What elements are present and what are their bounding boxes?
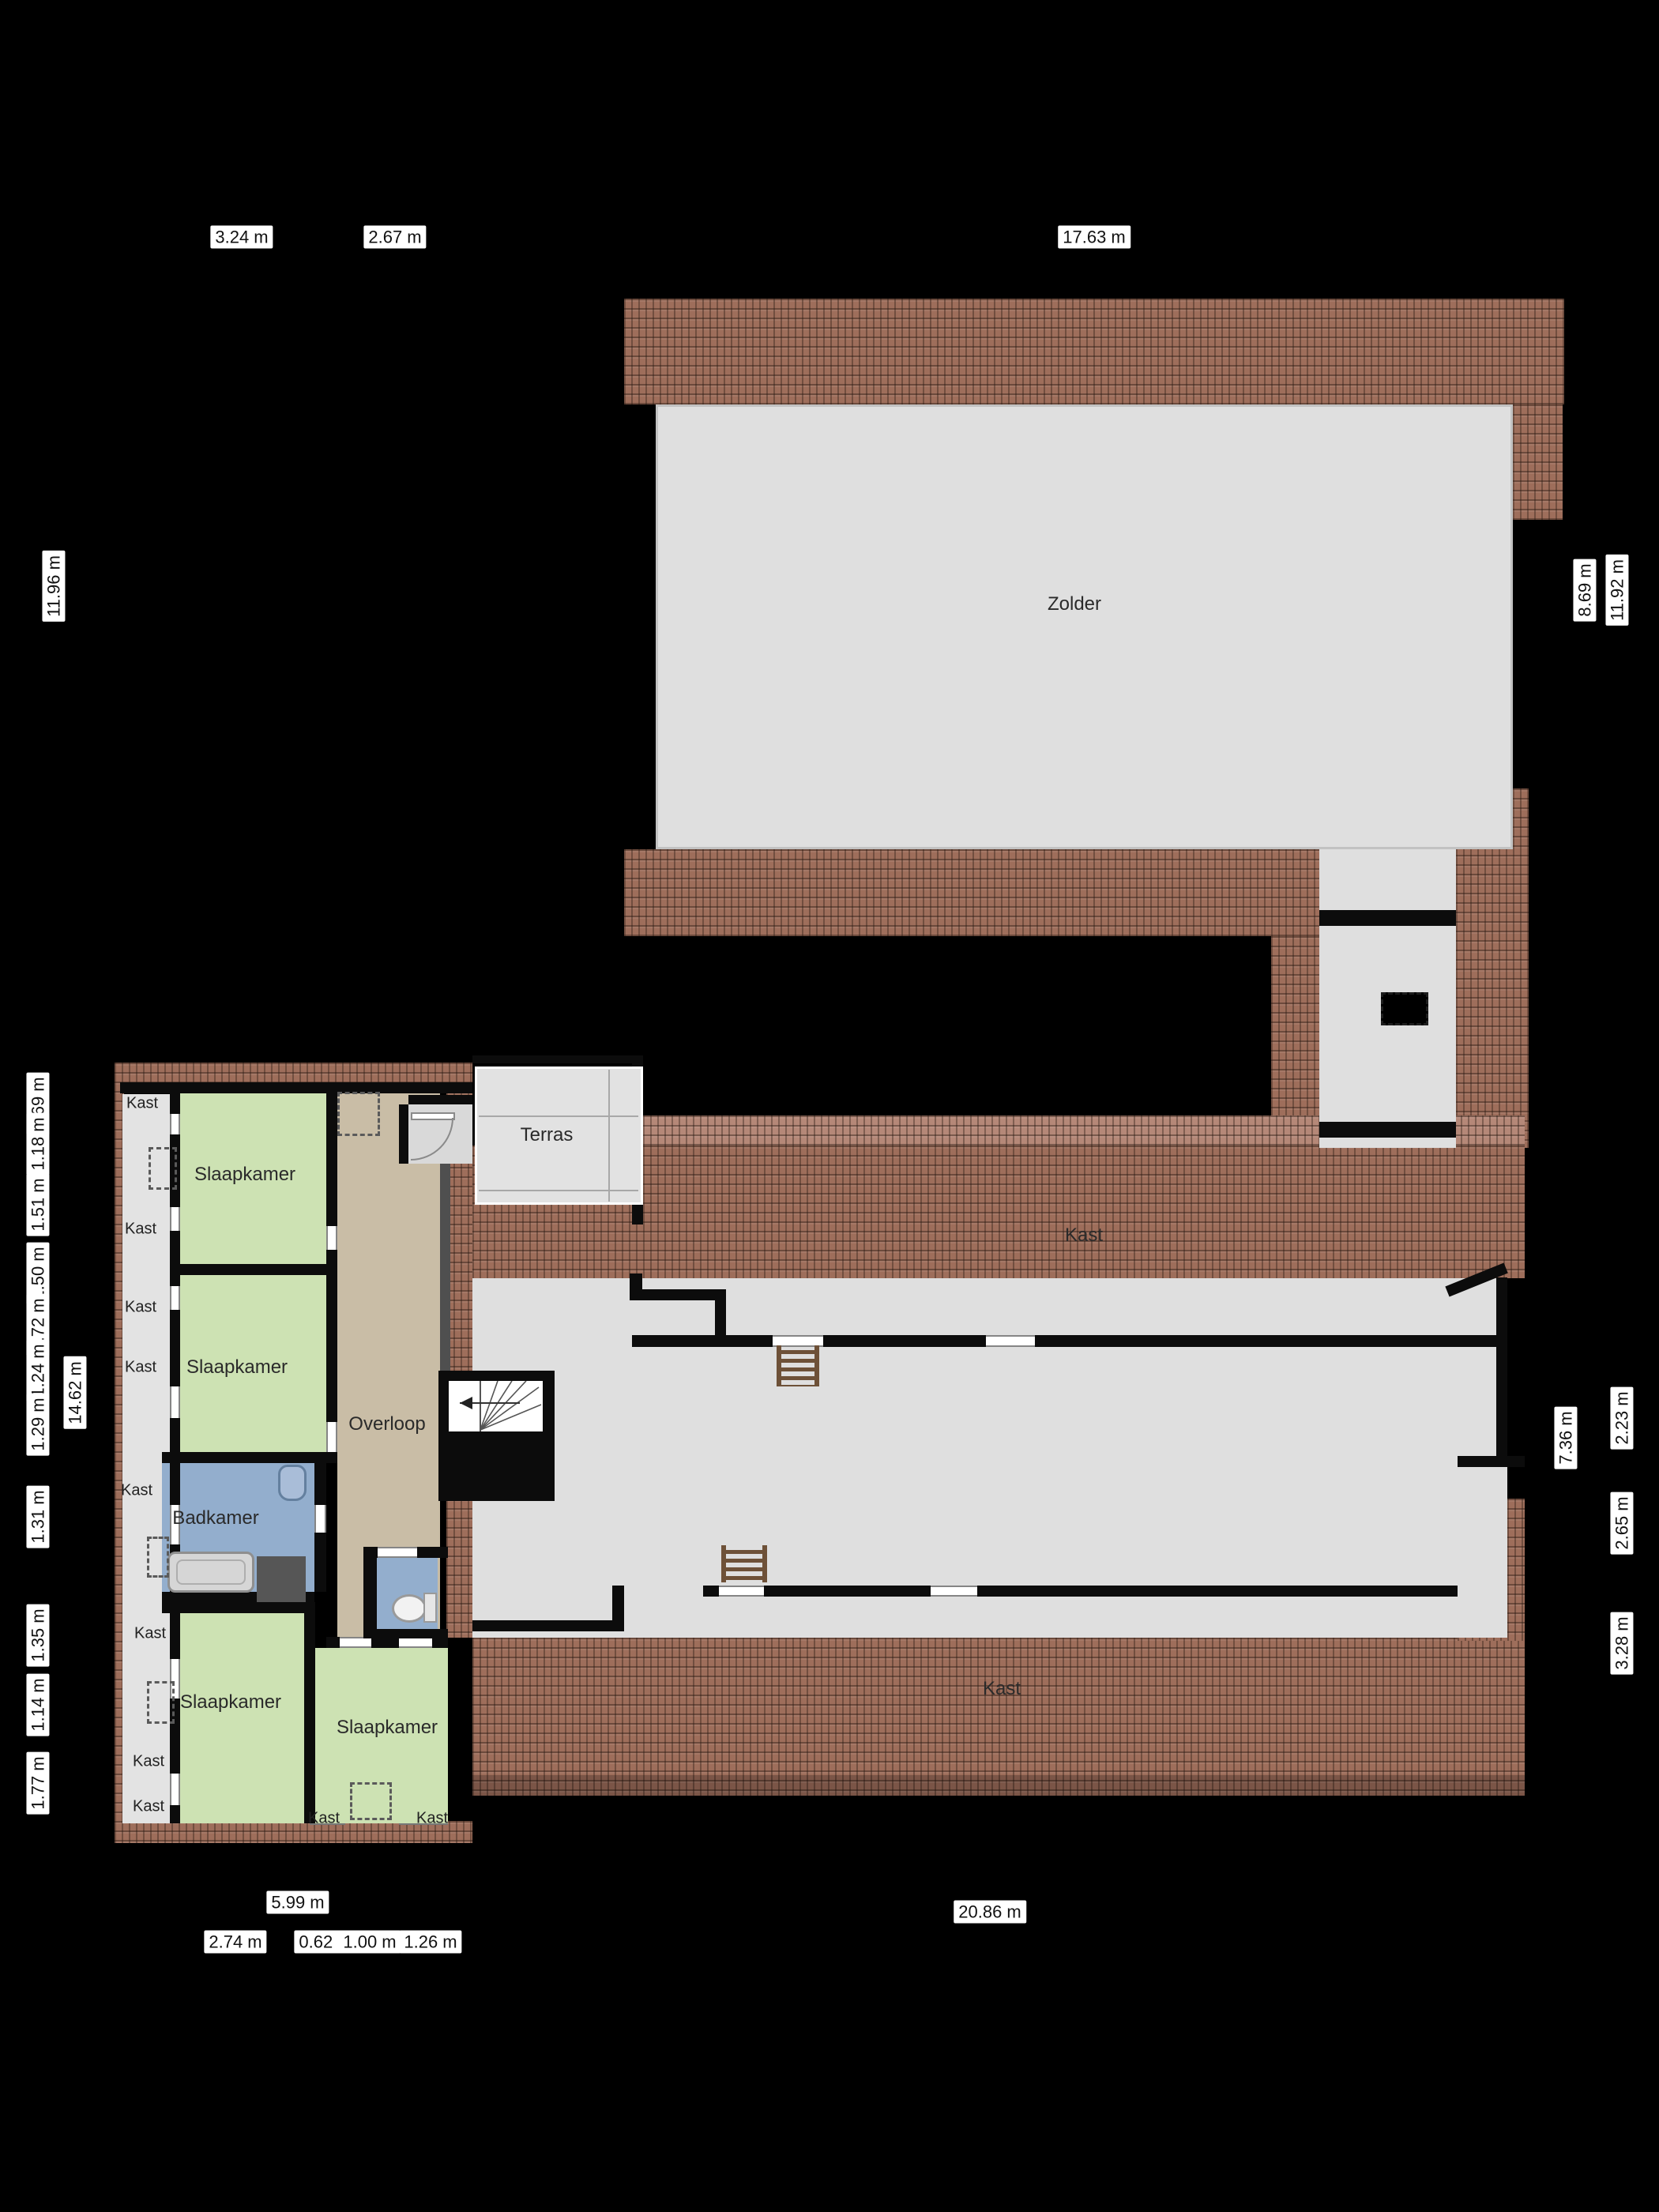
room-label-overloop: Overloop: [348, 1413, 425, 1435]
room-label-badkamer: Badkamer: [172, 1507, 258, 1529]
room-slaapkamer-3: [175, 1613, 304, 1823]
dim-label: 1.77 m: [26, 1751, 49, 1814]
sink-icon: [278, 1465, 307, 1501]
channel-wall-upper: [1319, 910, 1456, 926]
dim-label: 20.86 m: [954, 1900, 1026, 1923]
closet-door: [170, 1207, 180, 1231]
dim-label: 1.35 m: [26, 1604, 49, 1666]
closet-door: [170, 1114, 180, 1134]
attic-main-floor: [472, 1278, 1507, 1638]
window: [931, 1586, 977, 1597]
room-label-kast: Kast: [416, 1810, 448, 1828]
channel-wall-lower: [1319, 1122, 1456, 1138]
attic-wall-step-h: [630, 1289, 724, 1300]
dim-label: 1.29 m: [26, 1393, 49, 1455]
skylight-dashed: [337, 1092, 380, 1136]
toilet-icon: [392, 1594, 427, 1623]
window: [719, 1586, 764, 1597]
stairs-icon: [449, 1381, 543, 1431]
wall-vestibule-west: [399, 1104, 408, 1164]
room-zolder: [656, 404, 1513, 849]
loft-ladder-icon: [777, 1345, 819, 1386]
closet-door: [170, 1386, 180, 1418]
dim-label: 1.51 m: [26, 1173, 49, 1236]
closet-door: [170, 1774, 180, 1805]
wall-wc-south: [363, 1629, 448, 1638]
wing-top-wall: [120, 1082, 472, 1093]
roof-eave-shadow: [472, 1775, 1525, 1796]
dim-label: 11.92 m: [1605, 555, 1628, 626]
room-label-slaapkamer-4: Slaapkamer: [337, 1717, 438, 1739]
terras-rail-line: [479, 1115, 638, 1117]
dim-label: 1.31 m: [26, 1485, 49, 1548]
dim-label: 1.26 m: [399, 1930, 461, 1953]
attic-wall-right-bottom: [1458, 1456, 1525, 1467]
roof-band-top: [624, 299, 1564, 404]
dim-label: 2.65 m: [1610, 1492, 1633, 1554]
roof-band-kast-lower: [472, 1638, 1525, 1796]
window: [986, 1335, 1035, 1347]
dim-label: 2.23 m: [1610, 1386, 1633, 1449]
attic-wall-lower-west: [472, 1620, 624, 1631]
door-opening: [399, 1637, 432, 1648]
attic-wall-lower: [703, 1586, 1458, 1597]
room-label-kast-roof-upper: Kast: [1065, 1224, 1103, 1247]
attic-wall-step-up: [630, 1273, 642, 1300]
door-opening: [314, 1505, 326, 1533]
room-label-terras: Terras: [521, 1124, 574, 1146]
door-opening: [340, 1637, 371, 1648]
attic-wall-upper: [632, 1335, 1507, 1347]
wall-stairwell-gray: [440, 1164, 450, 1371]
room-label-slaapkamer-1: Slaapkamer: [194, 1164, 295, 1186]
dim-label: 11.96 m: [42, 551, 65, 622]
room-label-kast: Kast: [125, 1359, 156, 1377]
loft-ladder-icon: [721, 1545, 767, 1582]
terras-rail-line: [608, 1070, 610, 1202]
skylight-dashed: [147, 1681, 175, 1724]
skylight-dashed: [149, 1147, 177, 1190]
wall-wc-west: [363, 1558, 377, 1633]
dim-label: 7.36 m: [1554, 1406, 1577, 1469]
room-label-kast: Kast: [308, 1810, 340, 1828]
duct-shaft: [257, 1556, 306, 1602]
dim-label: 8.69 m: [1573, 559, 1596, 621]
attic-wall-right: [1496, 1277, 1507, 1467]
room-label-kast: Kast: [133, 1798, 164, 1816]
dim-label: 3.28 m: [1610, 1612, 1633, 1674]
wall-bed1-bed2: [175, 1264, 337, 1275]
room-label-kast: Kast: [125, 1299, 156, 1317]
dim-label: 17.63 m: [1058, 225, 1130, 248]
wc-door: [378, 1547, 417, 1558]
roof-band-mid: [624, 849, 1319, 936]
window: [326, 1226, 337, 1250]
skylight-dashed: [350, 1782, 392, 1820]
room-label-slaapkamer-3: Slaapkamer: [180, 1691, 281, 1714]
dim-label: 2.74 m: [204, 1930, 266, 1953]
room-label-kast: Kast: [125, 1221, 156, 1239]
room-label-zolder: Zolder: [1048, 593, 1101, 615]
wall-corridor-west: [326, 1093, 337, 1458]
dim-label: 2.67 m: [363, 225, 426, 248]
room-label-kast: Kast: [126, 1095, 158, 1113]
dim-label: 1.14 m: [26, 1673, 49, 1736]
wall-bed3-bed4: [304, 1608, 315, 1823]
toilet-tank-icon: [423, 1593, 437, 1623]
room-label-kast: Kast: [133, 1753, 164, 1771]
wall-bed2-bath: [162, 1452, 337, 1463]
bathtub-icon: [167, 1552, 254, 1593]
dim-label: 14.62 m: [63, 1356, 86, 1429]
terras-top-wall: [472, 1055, 643, 1063]
roof-corner-top-right: [1513, 404, 1563, 520]
dim-label: 1.18 m: [26, 1112, 49, 1175]
room-label-kast-roof-lower: Kast: [983, 1678, 1021, 1700]
dim-label: 5.99 m: [266, 1890, 329, 1913]
dim-label: 1.00 m: [338, 1930, 401, 1953]
chimney-icon: [1381, 992, 1428, 1025]
wall-bed3-top: [162, 1602, 315, 1613]
wall-vestibule-north: [408, 1095, 472, 1104]
door-opening: [326, 1422, 337, 1452]
room-label-kast: Kast: [134, 1625, 166, 1643]
room-label-kast: Kast: [121, 1482, 152, 1500]
dim-label: 3.24 m: [210, 225, 273, 248]
skylight-dashed: [147, 1537, 169, 1578]
attic-wall-step-v: [715, 1289, 726, 1346]
floor-plan-canvas: Zolder Kast Kast Terras Overloop Badkame…: [0, 0, 1659, 2212]
terras-rail-line: [479, 1190, 638, 1191]
room-label-slaapkamer-2: Slaapkamer: [186, 1356, 288, 1379]
closet-door: [170, 1286, 180, 1310]
